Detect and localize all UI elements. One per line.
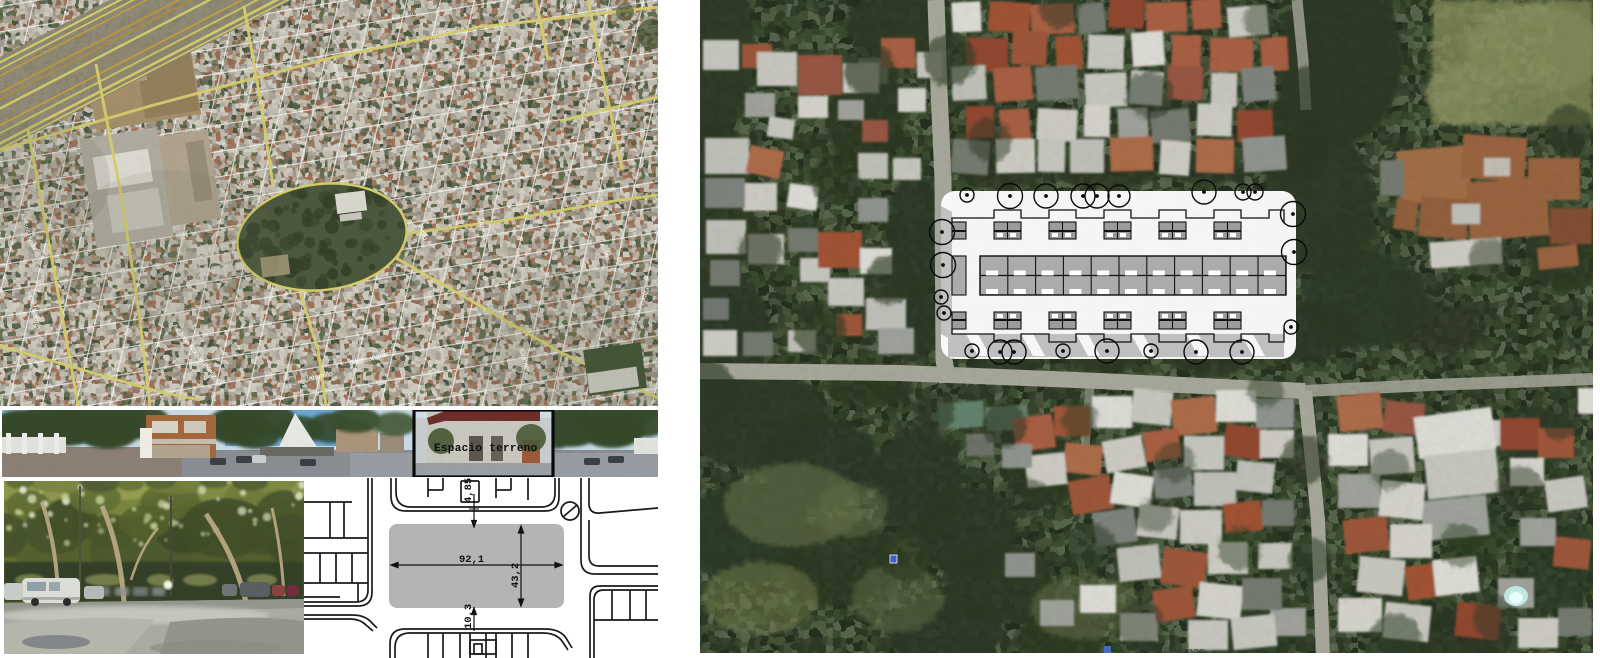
svg-text:4,85: 4,85 <box>463 478 475 503</box>
svg-text:10,3: 10,3 <box>463 604 475 629</box>
svg-text:92,1: 92,1 <box>459 554 484 566</box>
svg-text:43,2: 43,2 <box>510 563 522 588</box>
